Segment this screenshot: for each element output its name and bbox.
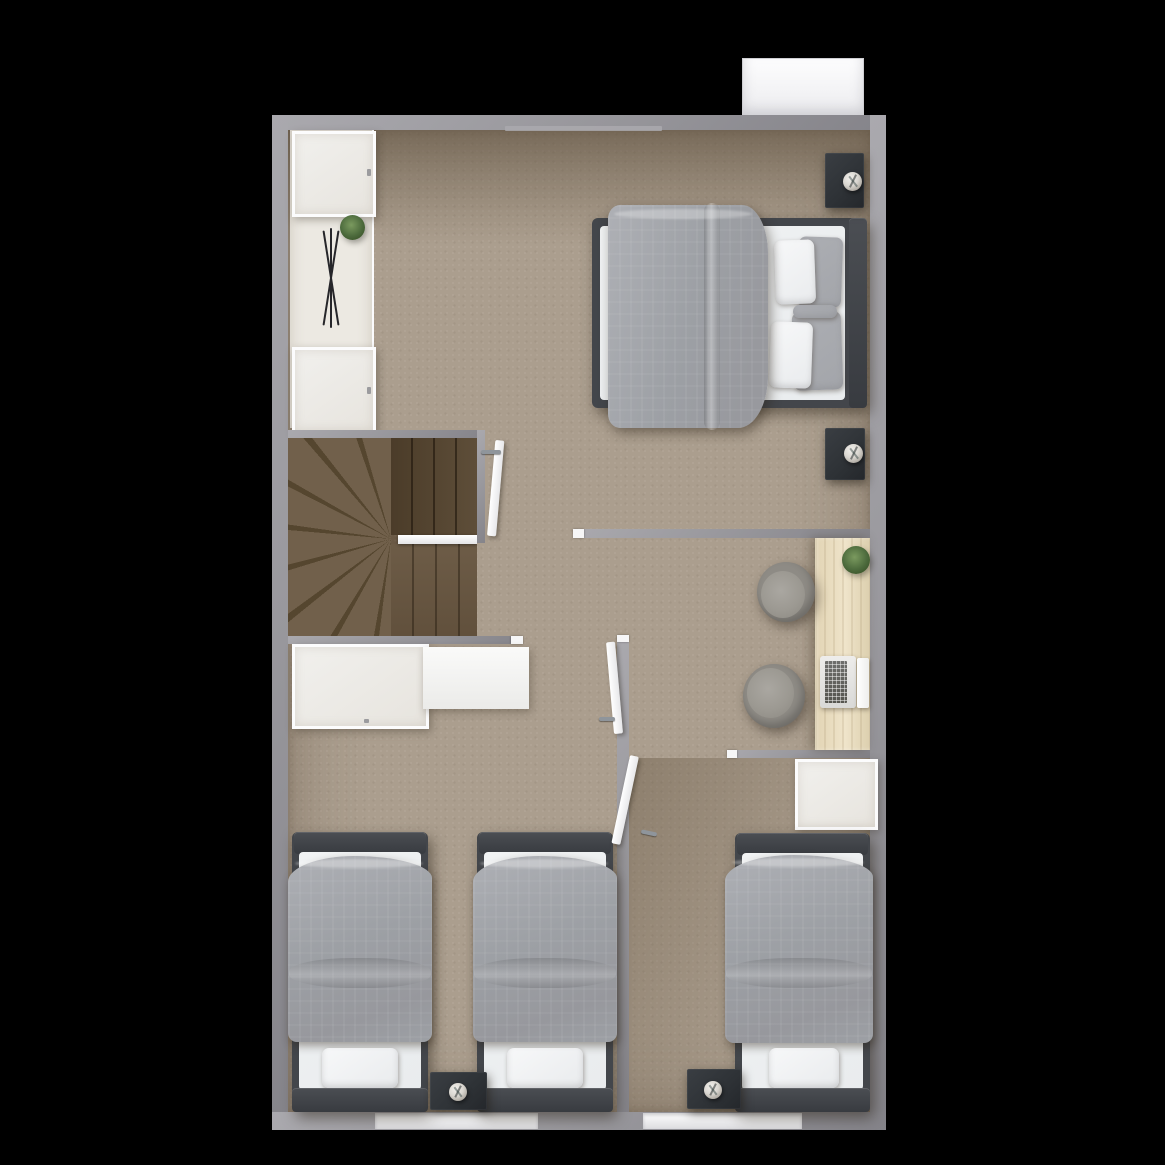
wall-study-bedroom — [727, 750, 870, 758]
shelf-handle-lower — [367, 387, 371, 394]
bed-pillow — [322, 1048, 398, 1088]
window-bottom-right — [643, 1113, 802, 1129]
chair-seat — [747, 668, 794, 718]
airer-bar — [330, 228, 332, 328]
stair-wall-top — [288, 430, 485, 438]
counter-handle — [364, 719, 369, 723]
tub-chair-lower — [743, 664, 805, 728]
master-bed — [592, 218, 867, 408]
outer-wall-left — [272, 115, 288, 1130]
wardrobe-shelf-lower — [292, 347, 376, 433]
nightstand-white — [795, 759, 878, 830]
bed-pillow — [507, 1048, 583, 1088]
stair-upper-flight — [391, 438, 477, 535]
bed-foot-rail — [294, 832, 426, 854]
door-handle — [599, 717, 615, 721]
stairs — [288, 438, 477, 636]
wall-end-cap — [511, 636, 523, 644]
hall-counter — [292, 644, 429, 729]
tub-chair-upper — [757, 562, 815, 622]
window-bottom-left — [375, 1113, 538, 1129]
pillow-bolster — [793, 305, 837, 318]
nightstand-master-upper — [825, 153, 864, 208]
table-lamp — [844, 444, 863, 463]
clothes-airer — [317, 230, 343, 326]
wardrobe-shelf-upper — [292, 131, 376, 217]
shelf-handle-upper — [367, 169, 371, 176]
potted-plant-wardrobe — [340, 215, 365, 240]
stair-wall-bottom — [288, 636, 523, 644]
master-headboard — [849, 218, 867, 408]
pillow-white — [769, 321, 813, 388]
single-bed-right — [477, 832, 613, 1112]
nightstand-master-lower — [825, 428, 865, 480]
master-duvet — [608, 205, 768, 428]
bed-headboard — [292, 1088, 428, 1112]
bed-blanket — [473, 856, 617, 1042]
tablet-stand — [857, 658, 869, 708]
stair-lower-flight — [391, 544, 477, 636]
nightstand-single-room — [687, 1069, 741, 1109]
single-bed-left — [292, 832, 428, 1112]
bed-pillow — [769, 1048, 839, 1088]
bed-foot-rail — [737, 833, 868, 855]
single-bed-bottom-right — [735, 833, 870, 1112]
wall-end-cap — [617, 635, 629, 642]
pillow-white — [774, 239, 816, 304]
stair-handrail — [398, 535, 477, 544]
door-handle — [481, 450, 501, 454]
table-lamp — [704, 1081, 722, 1099]
top-wall-sill — [505, 126, 662, 131]
wall-end-cap — [573, 529, 584, 538]
stair-wall-right — [477, 430, 485, 543]
nightstand-twin-room — [430, 1072, 487, 1110]
table-lamp — [449, 1083, 467, 1101]
bed-foot-rail — [479, 832, 611, 854]
stair-winder-treads — [288, 438, 391, 636]
floorplan — [0, 0, 1165, 1165]
wall-master-study — [573, 529, 870, 538]
table-lamp — [843, 172, 862, 191]
bed-headboard — [477, 1088, 613, 1112]
bed-blanket — [288, 856, 432, 1042]
bed-headboard — [735, 1088, 870, 1112]
hall-cabinet — [423, 647, 529, 709]
laptop-keyboard — [825, 661, 847, 703]
wall-end-cap — [727, 750, 737, 758]
balcony-ledge — [742, 58, 864, 118]
potted-plant-desk — [842, 546, 870, 574]
laptop — [820, 656, 856, 708]
bed-blanket — [725, 855, 873, 1043]
chair-seat — [761, 571, 805, 618]
